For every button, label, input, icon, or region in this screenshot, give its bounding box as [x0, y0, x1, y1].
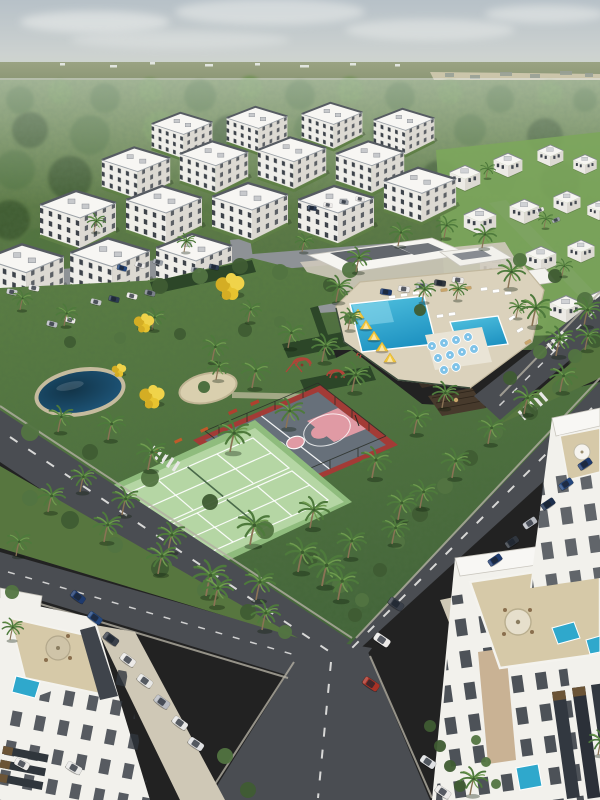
shrub	[491, 779, 501, 789]
cloud	[485, 5, 600, 23]
car	[522, 516, 539, 531]
distant-building	[445, 73, 454, 77]
distant-building	[530, 74, 540, 78]
shrub	[202, 494, 218, 510]
lounger-seat	[400, 293, 407, 297]
shrub	[568, 349, 582, 363]
distant-building	[350, 63, 356, 66]
shrub	[272, 264, 288, 280]
shrub	[424, 720, 436, 732]
shrub	[240, 782, 256, 798]
distant-building	[500, 72, 512, 76]
lounger	[400, 293, 407, 297]
shrub	[21, 423, 39, 441]
shrub	[434, 740, 446, 752]
aerial-render-image	[0, 0, 600, 800]
shrub	[192, 268, 208, 284]
shrub	[355, 593, 369, 607]
parasol	[428, 342, 437, 351]
shrub	[64, 336, 76, 348]
shrub	[414, 304, 426, 316]
shrub	[114, 332, 126, 344]
shrub	[503, 371, 517, 385]
lounger	[440, 288, 447, 292]
parasol	[434, 354, 443, 363]
lounger-seat	[480, 287, 487, 291]
parasol	[452, 336, 461, 345]
shrub	[533, 345, 547, 359]
community-aerial-scene	[0, 0, 600, 800]
parasol	[464, 333, 473, 342]
shrub	[348, 608, 362, 622]
shrub	[471, 735, 481, 745]
cloud	[70, 31, 290, 49]
parasol	[452, 363, 461, 372]
distant-building	[110, 65, 117, 68]
cloud	[345, 19, 515, 41]
shrub	[481, 757, 491, 767]
shrub	[82, 444, 98, 460]
parasol	[446, 351, 455, 360]
car	[504, 535, 521, 550]
lounger-seat	[412, 291, 419, 295]
cloud	[175, 0, 365, 25]
parasol	[440, 339, 449, 348]
shrub	[238, 323, 252, 337]
distant-building	[205, 64, 213, 67]
shrub	[454, 780, 466, 792]
distant-building	[60, 63, 65, 66]
distant-building	[255, 63, 260, 66]
parasol	[440, 366, 449, 375]
lounger	[480, 287, 487, 291]
shrub	[232, 258, 248, 274]
lounger-seat	[440, 288, 447, 292]
parasol	[458, 348, 467, 357]
shrub	[152, 278, 168, 294]
shrub	[217, 748, 233, 764]
distant-building	[560, 71, 572, 75]
shrub	[22, 490, 38, 506]
shrub	[278, 625, 292, 639]
lounger	[412, 291, 419, 295]
distant-building	[300, 65, 309, 68]
car	[418, 754, 437, 771]
distant-building	[395, 64, 400, 67]
lounger-seat	[492, 289, 499, 293]
shrub	[373, 563, 387, 577]
cloud	[20, 11, 170, 33]
distant-building	[585, 73, 593, 77]
shrub	[174, 328, 186, 340]
plunge-pool	[516, 764, 542, 790]
lounger	[492, 289, 499, 293]
shrub	[342, 262, 358, 278]
distant-building	[150, 62, 155, 65]
shrub	[5, 585, 19, 599]
shrub	[61, 511, 79, 529]
shrub	[444, 760, 456, 772]
parasol	[470, 345, 479, 354]
